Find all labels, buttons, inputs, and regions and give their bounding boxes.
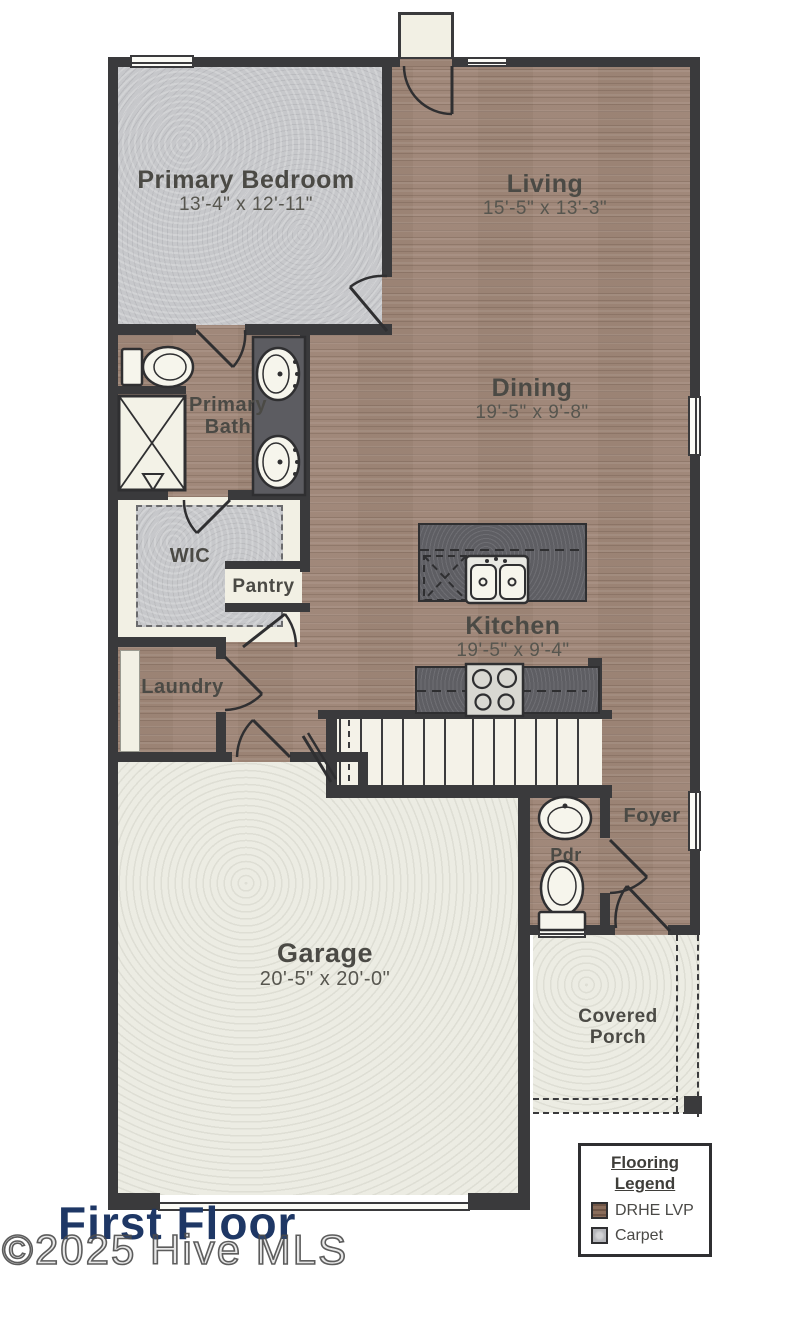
room-dims: 13'-4" x 12'-11" (115, 194, 377, 215)
carpet-swatch (591, 1227, 608, 1244)
room-name: WIC (150, 545, 230, 567)
legend-title: Flooring (611, 1152, 679, 1173)
room-name: Laundry (130, 676, 235, 698)
pedestal-sink (539, 797, 591, 839)
room-name: Living (430, 170, 660, 198)
room-label-powder: Pdr (536, 845, 596, 865)
room-label-kitchen: Kitchen 19'-5" x 9'-4" (408, 612, 618, 661)
room-label-primary-bedroom: Primary Bedroom 13'-4" x 12'-11" (115, 166, 377, 215)
toilet (122, 347, 193, 387)
lvp-swatch (591, 1202, 608, 1219)
kitchen-sink (466, 556, 528, 603)
room-label-covered-porch: Covered Porch (553, 1006, 683, 1049)
bedroom-door (350, 276, 387, 331)
legend-item-label: Carpet (615, 1227, 663, 1245)
powder-toilet (539, 861, 585, 930)
room-dims: 19'-5" x 9'-4" (408, 640, 618, 661)
shower (119, 396, 185, 490)
room-name: Covered (553, 1006, 683, 1027)
garage-entry-door (237, 720, 290, 757)
room-label-laundry: Laundry (130, 676, 235, 698)
room-label-primary-bath: Primary Bath (183, 394, 273, 439)
room-dims: 15'-5" x 13'-3" (430, 198, 660, 219)
pantry-door (243, 614, 296, 647)
legend-title: Legend (615, 1173, 675, 1194)
stair-base-door (303, 733, 336, 782)
legend-item-carpet: Carpet (581, 1227, 709, 1245)
room-name: Garage (180, 938, 470, 968)
mls-watermark: ©2025 Hive MLS (2, 1226, 348, 1274)
legend-item-label: DRHE LVP (615, 1202, 694, 1220)
room-name: Bath (183, 416, 273, 438)
room-name: Primary Bedroom (115, 166, 377, 194)
range-stove (466, 664, 523, 716)
room-label-garage: Garage 20'-5" x 20'-0" (180, 938, 470, 991)
room-name: Primary (183, 394, 273, 416)
room-name: Dining (417, 374, 647, 402)
room-name: Pdr (536, 845, 596, 865)
powder-door (610, 840, 647, 893)
room-label-living: Living 15'-5" x 13'-3" (430, 170, 660, 219)
room-name: Porch (553, 1027, 683, 1048)
flooring-legend: Flooring Legend DRHE LVP Carpet (578, 1143, 712, 1257)
room-label-foyer: Foyer (612, 805, 692, 827)
room-label-pantry: Pantry (226, 576, 301, 597)
legend-item-lvp: DRHE LVP (581, 1202, 709, 1220)
back-door (404, 66, 452, 114)
room-dims: 20'-5" x 20'-0" (180, 968, 470, 990)
room-name: Pantry (226, 576, 301, 597)
dishwasher (424, 556, 466, 600)
floor-plan: Primary Bedroom 13'-4" x 12'-11" Living … (0, 0, 794, 1322)
wic-door (184, 500, 230, 533)
room-name: Kitchen (408, 612, 618, 640)
room-label-wic: WIC (150, 545, 230, 567)
room-dims: 19'-5" x 9'-8" (417, 402, 647, 423)
front-door (615, 886, 670, 931)
room-name: Foyer (612, 805, 692, 827)
room-label-dining: Dining 19'-5" x 9'-8" (417, 374, 647, 423)
bath-door (196, 330, 245, 367)
